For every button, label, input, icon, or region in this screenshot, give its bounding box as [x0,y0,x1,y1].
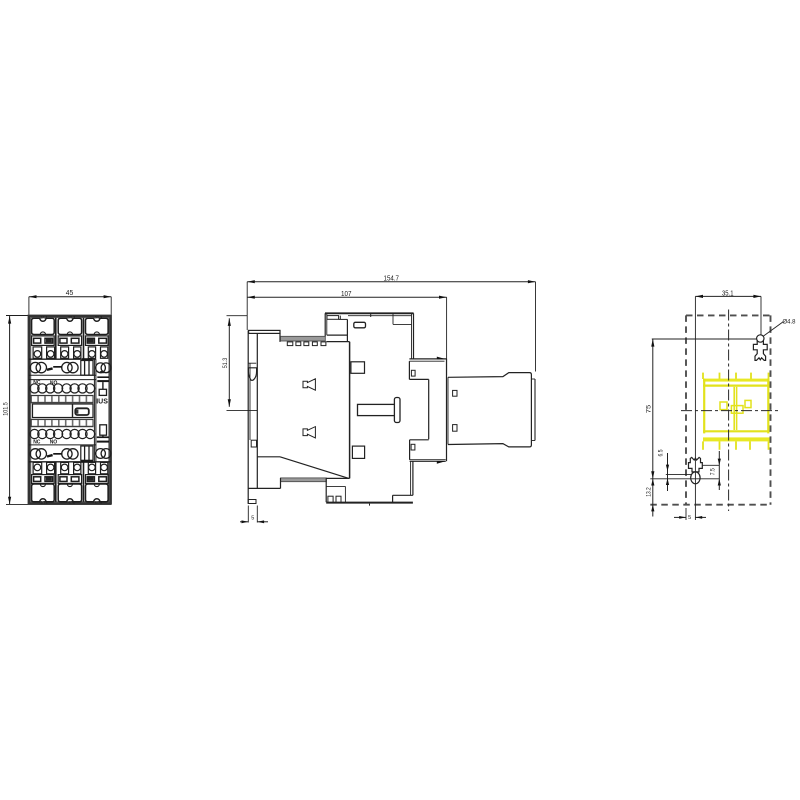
svg-text:101.5: 101.5 [4,402,10,416]
svg-text:5: 5 [251,515,254,521]
svg-text:3/L2: 3/L2 [68,315,75,319]
svg-text:1/L1: 1/L1 [40,315,47,319]
svg-text:45: 45 [66,290,74,297]
svg-text:13.2: 13.2 [647,487,653,497]
svg-text:35.1: 35.1 [722,291,734,298]
svg-text:4/T2: 4/T2 [68,500,75,504]
svg-text:6/T3: 6/T3 [95,500,102,504]
svg-text:7.5: 7.5 [711,468,717,476]
svg-text:51.3: 51.3 [223,357,229,368]
svg-text:5/L3: 5/L3 [95,315,102,319]
svg-text:NC: NC [33,439,41,445]
svg-text:154.7: 154.7 [384,276,400,283]
svg-text:75: 75 [645,404,652,413]
svg-text:107: 107 [341,291,352,298]
svg-text:6.5: 6.5 [659,449,665,457]
svg-text:2/T1: 2/T1 [40,500,47,504]
svg-text:NO: NO [50,439,58,445]
svg-text:IUS: IUS [96,398,108,405]
svg-text:Ø4.8: Ø4.8 [783,319,796,326]
svg-text:5: 5 [688,515,691,521]
